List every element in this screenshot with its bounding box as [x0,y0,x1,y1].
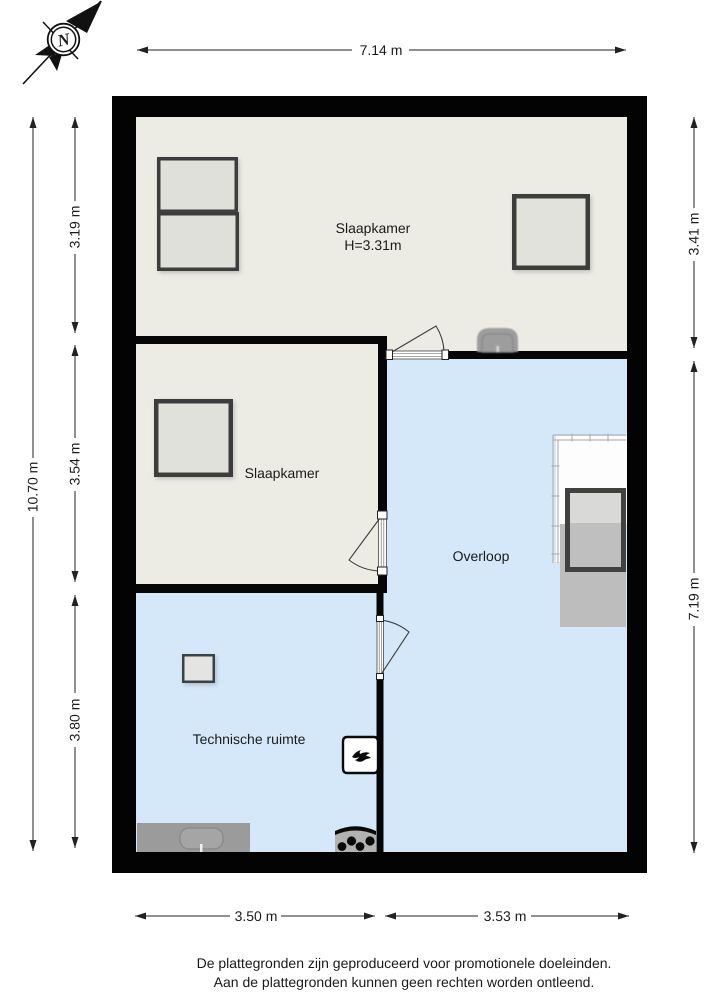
svg-text:Slaapkamer: Slaapkamer [336,220,411,236]
svg-text:H=3.31m: H=3.31m [344,237,401,253]
svg-text:Overloop: Overloop [453,548,510,564]
svg-text:10.70 m: 10.70 m [25,462,41,513]
svg-text:Aan de plattegronden kunnen ge: Aan de plattegronden kunnen geen rechten… [214,974,595,990]
svg-text:3.19 m: 3.19 m [67,206,83,249]
svg-text:7.14 m: 7.14 m [360,42,403,58]
svg-text:3.53 m: 3.53 m [484,908,527,924]
svg-text:De plattegronden zijn geproduc: De plattegronden zijn geproduceerd voor … [197,955,612,971]
svg-text:7.19 m: 7.19 m [686,578,702,621]
svg-text:3.54 m: 3.54 m [67,443,83,486]
svg-text:3.50 m: 3.50 m [235,908,278,924]
svg-text:3.80 m: 3.80 m [67,699,83,742]
svg-text:3.41 m: 3.41 m [686,213,702,256]
svg-text:Slaapkamer: Slaapkamer [245,465,320,481]
svg-text:Technische ruimte: Technische ruimte [193,731,306,747]
